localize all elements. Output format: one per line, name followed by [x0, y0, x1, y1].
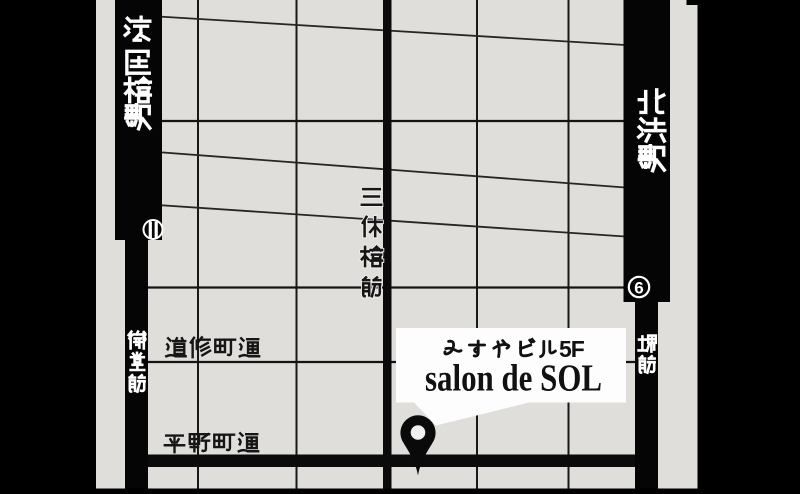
- svg-text:salon de SOL: salon de SOL: [425, 358, 602, 400]
- svg-text:6: 6: [634, 279, 643, 298]
